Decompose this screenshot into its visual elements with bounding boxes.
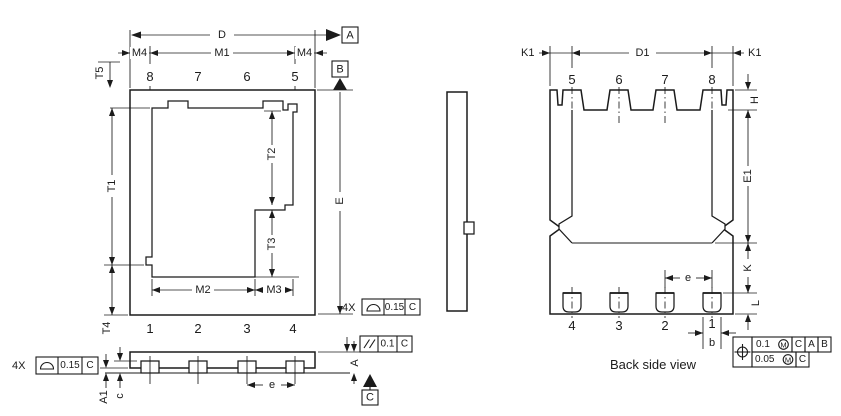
dim-label-M4-right: M4 <box>297 47 312 59</box>
profile-of-surface-icon <box>367 305 380 311</box>
pin-label-6: 6 <box>615 72 622 87</box>
fcf-position-row1-datum-3: B <box>821 339 828 350</box>
fcf-position-row1-modifier: M <box>780 340 786 349</box>
top-view-pin-numbers-top: 8 7 6 5 <box>146 69 298 84</box>
dim-D: D <box>131 29 341 41</box>
top-view: D A M4 M1 M4 8 7 6 5 <box>94 27 420 336</box>
pin-label-5: 5 <box>291 69 298 84</box>
datum-a: A <box>342 27 358 43</box>
fcf-position-row2-datum-1: C <box>799 354 806 365</box>
fcf-position-row1-value: 0.1 <box>756 339 770 350</box>
side-view-tab <box>464 222 474 234</box>
fcf-position-row2-modifier: M <box>785 355 791 364</box>
pin-label-1: 1 <box>708 316 715 331</box>
dim-label-A: A <box>349 359 361 367</box>
pin-label-7: 7 <box>194 69 201 84</box>
dim-label-K1-right: K1 <box>748 47 761 59</box>
profile-of-surface-icon <box>41 363 54 369</box>
dim-label-T1: T1 <box>106 180 118 193</box>
back-view-title: Back side view <box>610 357 697 372</box>
dim-label-E: E <box>334 197 346 204</box>
dim-label-e-back: e <box>685 272 691 284</box>
pin-label-8: 8 <box>708 72 715 87</box>
front-view: e A C A1 <box>12 336 412 405</box>
datum-c-label: C <box>366 392 374 404</box>
package-outline-drawing: D A M4 M1 M4 8 7 6 5 <box>0 0 841 416</box>
dim-label-D: D <box>218 29 226 41</box>
side-view <box>447 92 474 311</box>
fcf-profile-front-datum: C <box>86 360 93 371</box>
dim-label-T3: T3 <box>266 238 278 251</box>
dim-E: E <box>334 92 346 314</box>
fcf-profile-top-value: 0.15 <box>385 302 405 313</box>
pin-label-3: 3 <box>243 321 250 336</box>
datum-a-label: A <box>346 30 354 42</box>
pin-label-6: 6 <box>243 69 250 84</box>
pin-label-2: 2 <box>661 318 668 333</box>
fcf-parallelism-value: 0.1 <box>381 339 395 350</box>
top-view-pin-numbers-bottom: 1 2 3 4 <box>146 321 296 336</box>
datum-b: B <box>332 61 348 90</box>
fcf-profile-front-count: 4X <box>12 360 26 372</box>
dim-label-T2: T2 <box>266 148 278 161</box>
fcf-position-row2-value: 0.05 <box>755 354 775 365</box>
fcf-profile-front: 4X 0.15 C <box>12 357 98 374</box>
pin-label-2: 2 <box>194 321 201 336</box>
fcf-profile-top: 4X 0.15 C <box>342 299 420 315</box>
dim-label-K: K <box>742 264 754 272</box>
dim-label-e-front: e <box>269 379 275 391</box>
pin-label-4: 4 <box>289 321 296 336</box>
dim-label-E1: E1 <box>742 169 754 182</box>
dim-label-T5: T5 <box>94 67 106 80</box>
dim-label-M1: M1 <box>214 47 229 59</box>
dim-L: L <box>735 300 762 330</box>
datum-b-triangle <box>333 78 347 90</box>
fcf-profile-front-value: 0.15 <box>60 360 80 371</box>
dim-label-L: L <box>750 300 762 306</box>
fcf-profile-top-count: 4X <box>342 302 356 314</box>
fcf-profile-top-datum: C <box>409 302 416 313</box>
dim-label-M2: M2 <box>195 284 210 296</box>
datum-b-label: B <box>336 64 343 76</box>
dim-label-H: H <box>749 96 761 104</box>
datum-c: C <box>362 374 378 405</box>
pin-label-3: 3 <box>615 318 622 333</box>
side-view-body <box>447 92 467 311</box>
dim-T4: T4 <box>101 265 128 334</box>
dim-label-K1-left: K1 <box>521 47 534 59</box>
back-view-pin-numbers-top: 5 6 7 8 <box>568 72 715 87</box>
pin-label-1: 1 <box>146 321 153 336</box>
dim-label-M4-left: M4 <box>132 47 147 59</box>
dim-label-D1: D1 <box>635 47 649 59</box>
dim-e-front: e <box>247 379 295 391</box>
back-view-pin-numbers-bottom: 4 3 2 1 <box>568 316 715 333</box>
dim-label-c: c <box>114 393 126 399</box>
dim-label-b: b <box>709 337 715 349</box>
dim-label-A1: A1 <box>98 390 110 403</box>
pin-label-4: 4 <box>568 318 575 333</box>
fcf-position: 0.1 M C A B 0.05 M C <box>733 337 831 367</box>
dim-T5: T5 <box>94 62 120 88</box>
pin-label-8: 8 <box>146 69 153 84</box>
dim-A: A <box>318 341 361 384</box>
fcf-position-row1-datum-2: A <box>808 339 815 350</box>
parallelism-icon <box>364 340 375 349</box>
dim-label-M3: M3 <box>266 284 281 296</box>
dim-K1-D1: K1 D1 K1 <box>521 46 761 86</box>
drawing-svg: D A M4 M1 M4 8 7 6 5 <box>0 0 841 416</box>
position-icon <box>735 344 751 360</box>
datum-c-triangle <box>363 374 377 387</box>
dim-label-T4: T4 <box>101 322 113 335</box>
fcf-position-row1-datum-1: C <box>795 339 802 350</box>
pin-label-5: 5 <box>568 72 575 87</box>
dim-M-row: M4 M1 M4 <box>118 47 327 59</box>
fcf-parallelism-datum: C <box>401 339 408 350</box>
back-view: 5 6 7 8 4 3 2 1 K1 D1 K1 <box>521 46 831 372</box>
pin-label-7: 7 <box>661 72 668 87</box>
